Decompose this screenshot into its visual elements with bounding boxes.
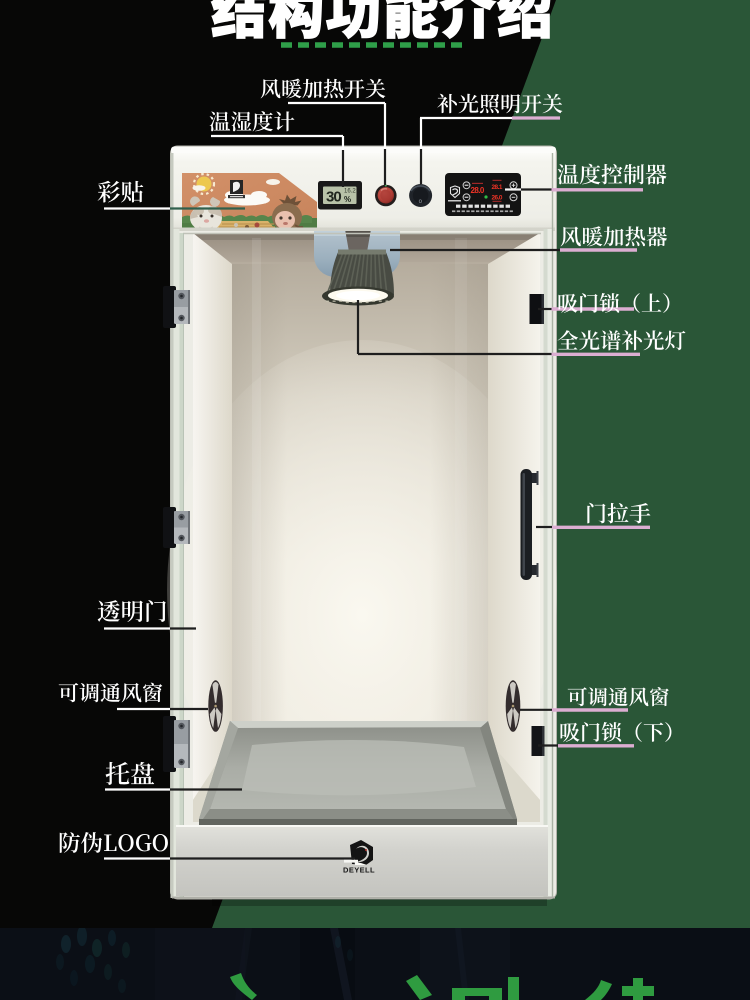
svg-text:30: 30 [326,189,341,206]
svg-text:16.2: 16.2 [344,189,356,195]
svg-text:28.1: 28.1 [492,184,503,191]
svg-text:26.0: 26.0 [492,194,503,201]
svg-text:DEYELL: DEYELL [343,866,375,875]
svg-text:28.0: 28.0 [471,186,485,195]
svg-text:%: % [344,195,351,204]
